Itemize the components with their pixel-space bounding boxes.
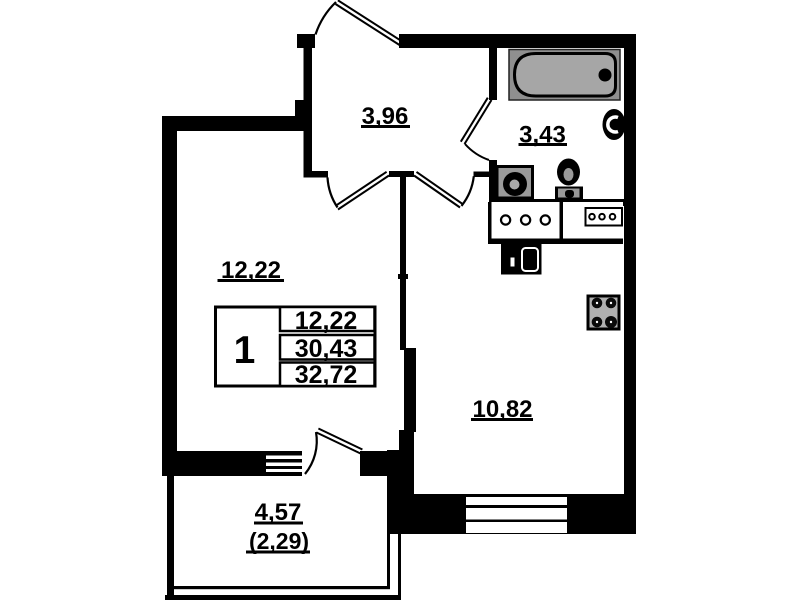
svg-text:1: 1 [234, 329, 256, 372]
svg-text:32,72: 32,72 [295, 361, 358, 389]
svg-text:(2,29): (2,29) [249, 528, 309, 554]
svg-text:12,22: 12,22 [295, 307, 358, 335]
svg-text:30,43: 30,43 [295, 335, 358, 363]
